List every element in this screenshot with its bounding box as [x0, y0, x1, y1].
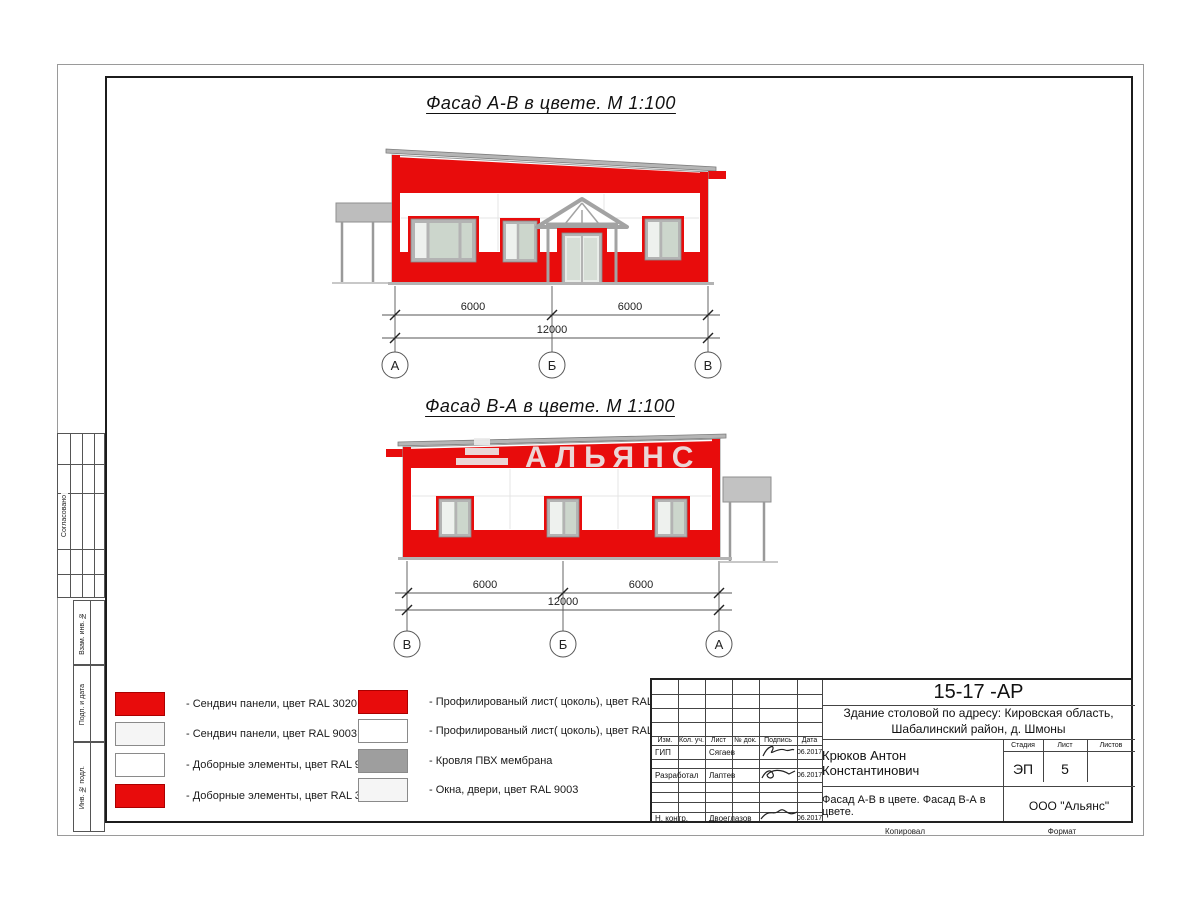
sheets-total: [1087, 751, 1135, 786]
vzam-inv-box: Взам. инв. №: [73, 600, 105, 665]
dim-12000: 12000: [537, 324, 568, 336]
row-dev-date: 06.2017: [797, 768, 822, 782]
row-ctrl-name: Двоеглазов: [707, 811, 758, 825]
svg-text:Б: Б: [559, 637, 568, 652]
approval-stamp-table: Согласовано: [57, 433, 105, 598]
base-strip: [388, 282, 714, 285]
facade-ba-drawing: АЛЬЯНС: [370, 425, 790, 670]
canopy-right: [720, 477, 778, 562]
legend-item: - Кровля ПВХ мембрана: [358, 749, 552, 773]
dimensions-ab: 6000 6000 12000 А Б В: [382, 286, 721, 378]
col-kol: Кол. уч.: [678, 736, 705, 745]
legend-item: - Окна, двери, цвет RAL 9003: [358, 778, 578, 802]
col-list: Лист: [705, 736, 732, 745]
stage-value: ЭП: [1003, 751, 1043, 786]
roof-edge-nub: [386, 449, 403, 457]
copied-label: Копировал: [865, 827, 945, 836]
dimensions-ba: 6000 6000 12000 В Б А: [394, 561, 732, 657]
red-corner-left: [392, 155, 400, 282]
sheet-number: 5: [1043, 751, 1087, 786]
window-1: [436, 496, 474, 540]
sheet-label: Лист: [1043, 739, 1087, 751]
vzam-inv-label: Взам. инв. №: [79, 610, 86, 657]
svg-text:В: В: [403, 637, 412, 652]
facade-ba-title: Фасад В-А в цвете. М 1:100: [350, 396, 750, 417]
chief-name: Крюков Антон Константинович: [822, 739, 1003, 786]
dim-6000-right: 6000: [618, 301, 642, 313]
facade-ab-title: Фасад А-В в цвете. М 1:100: [351, 93, 751, 114]
legend-item: - Профилированый лист( цоколь), цвет RAL…: [358, 690, 680, 714]
red-corner-left: [403, 447, 411, 557]
signature-ctrl: [757, 804, 799, 824]
podp-data-box: Подп. и дата: [73, 665, 105, 742]
inv-podl-label: Инв. № подл.: [79, 764, 86, 811]
col-data: Дата: [797, 736, 822, 745]
dim-12000: 12000: [548, 596, 579, 608]
window-2: [544, 496, 582, 540]
svg-text:В: В: [704, 358, 713, 373]
legend-swatch-red: [115, 784, 165, 808]
window-3: [652, 496, 690, 540]
dim-6000-right: 6000: [629, 579, 653, 591]
legend-swatch-red: [358, 690, 408, 714]
dim-6000-left: 6000: [473, 579, 497, 591]
legend-swatch-offwhite: [358, 778, 408, 802]
drawing-sheet: Фасад А-В в цвете. М 1:100 Фасад В-А в ц…: [0, 0, 1200, 900]
legend-item: - Профилированый лист( цоколь), цвет RAL…: [358, 719, 680, 743]
legend-item: - Сендвич панели, цвет RAL 9003: [115, 722, 357, 746]
approved-label: Согласовано: [61, 493, 68, 539]
row-dev-role: Разработал: [653, 768, 704, 782]
format-label: Формат: [1022, 827, 1102, 836]
legend-swatch-white: [358, 719, 408, 743]
watermark-text: АЛЬЯНС: [525, 441, 701, 474]
signature-dev: [759, 765, 797, 783]
legend-item: - Доборные элементы, цвет RAL 3020: [115, 784, 379, 808]
row-dev-name: Лаптев: [707, 768, 758, 782]
red-band-top: [394, 157, 706, 193]
company-name: ООО "Альянс": [1003, 786, 1135, 825]
roof-edge-nub: [708, 171, 726, 179]
row-gip-name: Сягаев: [707, 745, 758, 759]
svg-text:Б: Б: [548, 358, 557, 373]
base-strip: [398, 557, 732, 560]
doc-number: 15-17 -АР: [822, 680, 1135, 705]
window-right: [642, 216, 684, 263]
stage-label: Стадия: [1003, 739, 1043, 751]
row-gip-role: ГИП: [653, 745, 704, 759]
row-ctrl-date: 06.2017: [797, 811, 822, 825]
object-address: Здание столовой по адресу: Кировская обл…: [822, 705, 1135, 739]
row-ctrl-role: Н. контр.: [653, 811, 704, 825]
red-corner-right: [712, 439, 720, 557]
svg-text:А: А: [391, 358, 400, 373]
sheets-label: Листов: [1087, 739, 1135, 751]
podp-data-label: Подп. и дата: [79, 682, 86, 727]
row-gip-date: 06.2017: [797, 745, 822, 759]
facade-ab-drawing: 6000 6000 12000 А Б В: [320, 140, 740, 385]
window-large: [408, 216, 479, 265]
signature-gip: [759, 742, 797, 760]
window-middle: [500, 218, 540, 265]
legend-swatch-white: [115, 753, 165, 777]
legend-swatch-gray: [358, 749, 408, 773]
col-ndok: № док.: [732, 736, 759, 745]
inv-podl-box: Инв. № подл.: [73, 742, 105, 832]
canopy-left: [332, 203, 400, 283]
svg-text:А: А: [715, 637, 724, 652]
red-corner-right: [700, 172, 708, 282]
dim-6000-left: 6000: [461, 301, 485, 313]
drawing-title: Фасад А-В в цвете. Фасад В-А в цвете.: [822, 786, 1003, 825]
col-izm: Изм.: [652, 736, 678, 745]
legend-swatch-offwhite: [115, 722, 165, 746]
title-block: Изм. Кол. уч. Лист № док. Подпись Дата Г…: [650, 678, 1133, 823]
legend-item: - Доборные элементы, цвет RAL 9003: [115, 753, 379, 777]
legend-item: - Сендвич панели, цвет RAL 3020: [115, 692, 357, 716]
legend-swatch-red: [115, 692, 165, 716]
